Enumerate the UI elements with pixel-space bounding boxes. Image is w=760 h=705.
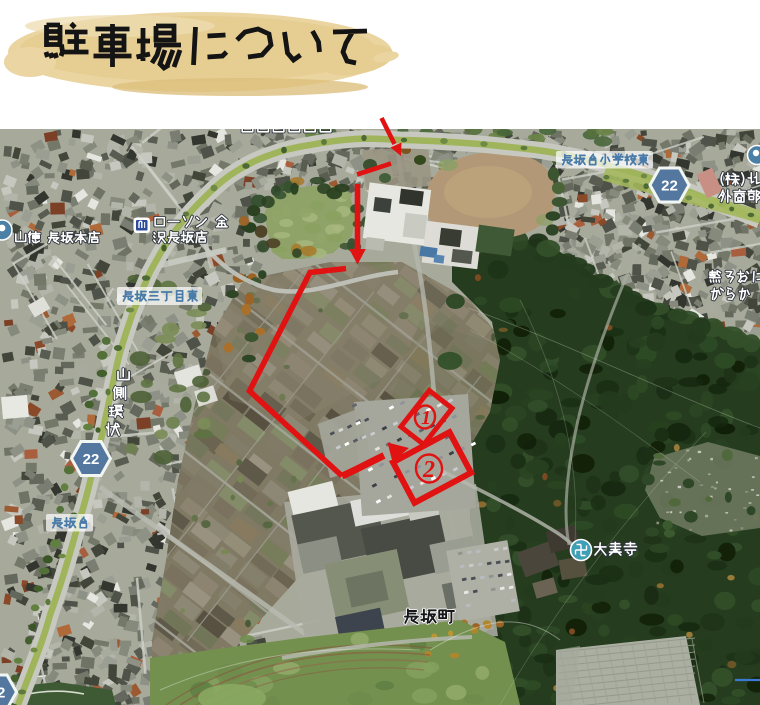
svg-text:22: 22: [661, 178, 678, 195]
svg-text:22: 22: [0, 685, 5, 702]
svg-text:22: 22: [83, 451, 100, 468]
svg-text:2: 2: [422, 457, 435, 483]
svg-text:1: 1: [421, 407, 431, 429]
